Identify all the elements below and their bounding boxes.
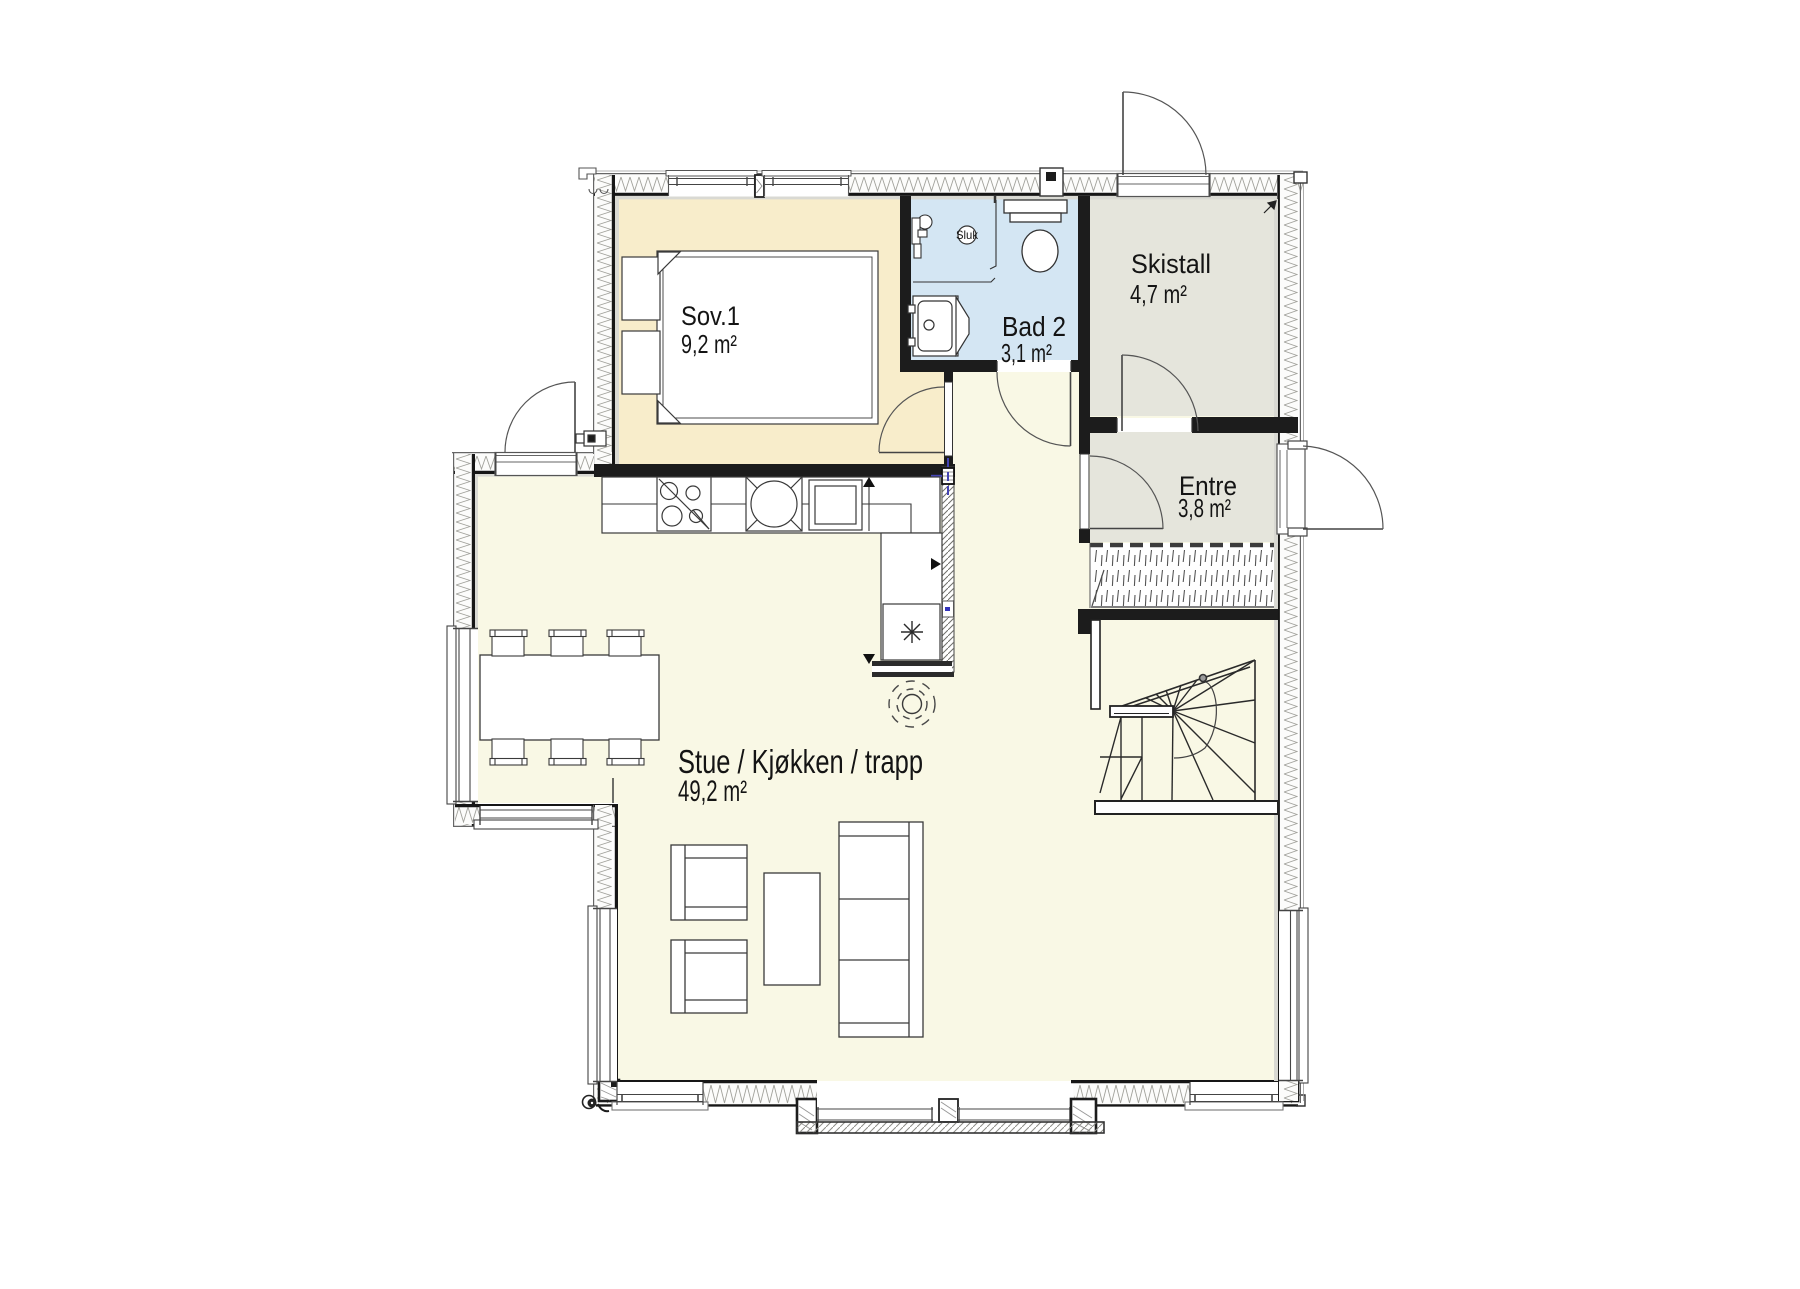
svg-text:9,2 m²: 9,2 m²: [681, 329, 737, 359]
svg-text:Sov.1: Sov.1: [681, 301, 740, 331]
svg-text:49,2 m²: 49,2 m²: [678, 775, 747, 808]
svg-text:Skistall: Skistall: [1131, 249, 1211, 279]
svg-text:3,8 m²: 3,8 m²: [1178, 493, 1231, 523]
svg-text:3,1 m²: 3,1 m²: [1001, 338, 1052, 368]
svg-text:4,7 m²: 4,7 m²: [1130, 279, 1187, 309]
svg-text:Sluk: Sluk: [956, 228, 979, 242]
